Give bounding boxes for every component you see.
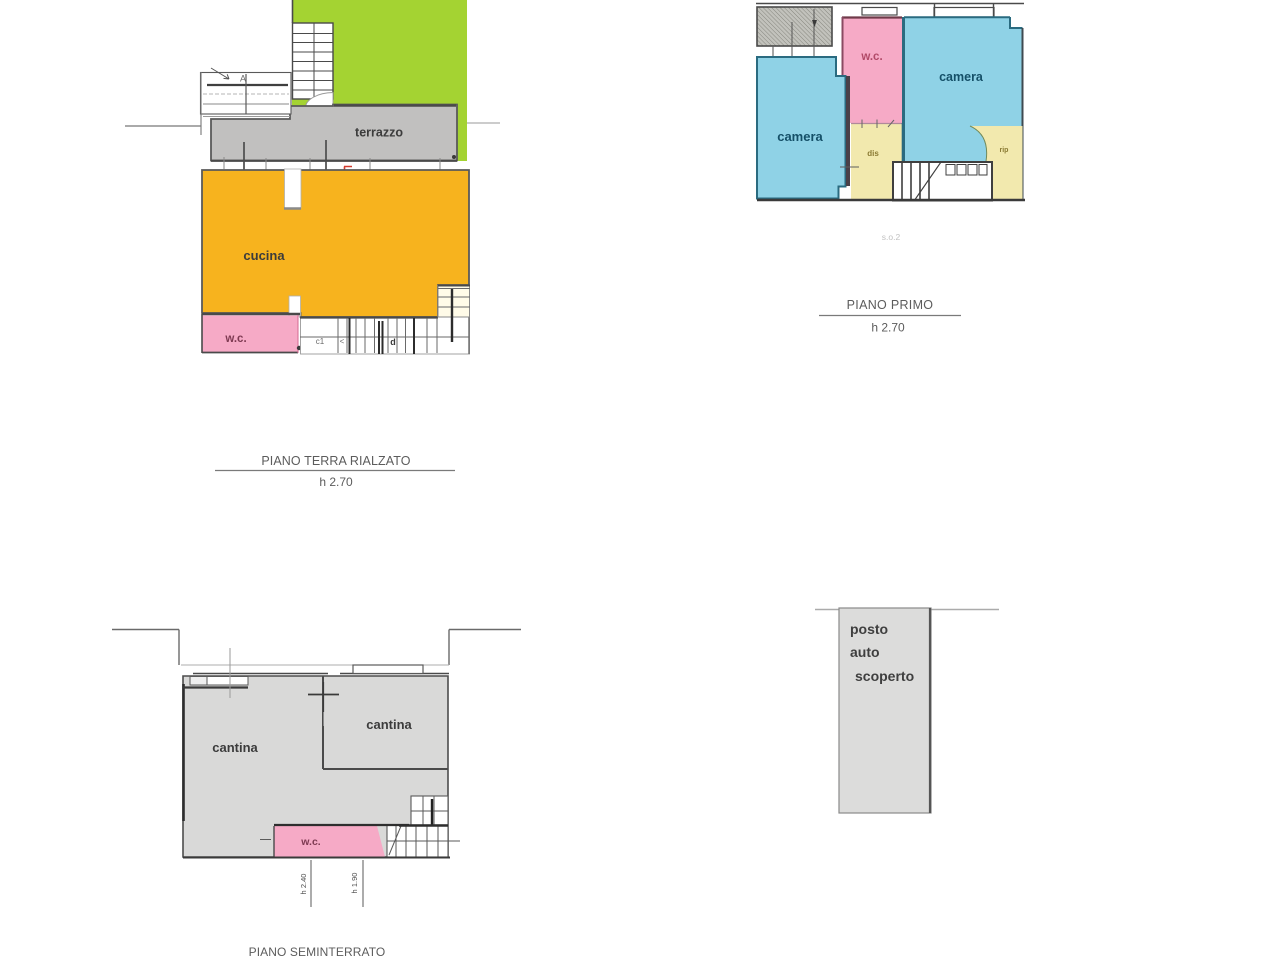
svg-text:camera: camera [939,70,984,84]
svg-text:PIANO TERRA RIALZATO: PIANO TERRA RIALZATO [261,454,410,468]
svg-text:h 1.90: h 1.90 [350,873,359,894]
svg-text:A: A [240,74,246,84]
svg-text:rip: rip [1000,147,1009,154]
svg-text:cantina: cantina [212,740,258,755]
svg-text:w.c.: w.c. [860,51,882,63]
svg-text:PIANO SEMINTERRATO: PIANO SEMINTERRATO [249,945,386,959]
svg-text:scoperto: scoperto [855,668,914,684]
svg-text:auto: auto [850,644,880,660]
svg-text:posto: posto [850,621,888,637]
svg-text:<: < [340,337,345,346]
svg-text:dis: dis [867,149,879,158]
svg-text:w.c.: w.c. [224,333,246,345]
svg-text:camera: camera [777,129,823,144]
svg-text:w.c.: w.c. [300,836,321,848]
svg-text:d: d [390,337,396,347]
svg-text:s.o.2: s.o.2 [882,232,901,242]
svg-text:h 2.70: h 2.70 [319,475,353,489]
svg-text:PIANO PRIMO: PIANO PRIMO [847,298,934,312]
svg-text:c1: c1 [316,337,325,346]
svg-text:cucina: cucina [243,248,285,263]
svg-text:h 2.70: h 2.70 [871,321,905,335]
svg-text:h 2.40: h 2.40 [299,874,308,895]
svg-text:terrazzo: terrazzo [355,126,403,140]
svg-text:cantina: cantina [366,717,412,732]
